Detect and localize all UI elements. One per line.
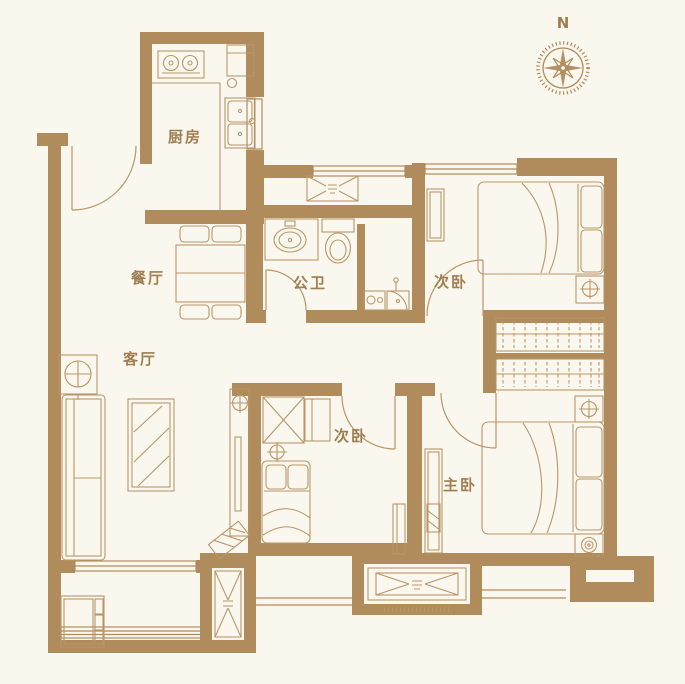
entry-inset — [364, 564, 470, 604]
wall-segment — [496, 353, 604, 359]
wall-segment — [422, 383, 435, 396]
wall-segment — [145, 210, 264, 224]
wall-segment — [248, 396, 261, 543]
wall-segment — [48, 560, 75, 573]
room-label-dining: 餐厅 — [131, 269, 165, 287]
wall-segment — [306, 310, 425, 323]
wall-segment — [246, 224, 263, 310]
corner-window-slot — [586, 570, 634, 582]
room-label-master: 主卧 — [443, 476, 477, 494]
room-label-bathroom: 公卫 — [293, 274, 327, 292]
wall-segment — [140, 32, 264, 44]
floorplan-page: 厨房 餐厅 公卫 次卧 客厅 次卧 主卧 N — [0, 0, 685, 684]
wall-segment — [140, 44, 152, 164]
room-label-bedroom-north: 次卧 — [434, 273, 468, 291]
wall-segment — [604, 158, 617, 560]
wall-segment — [263, 165, 313, 178]
compass-label: N — [557, 14, 570, 32]
wall-segment — [483, 310, 496, 393]
wall-segment — [37, 133, 68, 146]
wall-segment — [48, 146, 61, 653]
wall-segment — [246, 310, 266, 323]
wall-segment — [246, 44, 264, 97]
floorplan-svg: 厨房 餐厅 公卫 次卧 客厅 次卧 主卧 N — [0, 0, 685, 684]
wall-segment — [264, 205, 412, 218]
room-label-bedroom-center: 次卧 — [334, 427, 368, 445]
room-label-living: 客厅 — [122, 350, 157, 368]
wall-segment — [407, 396, 422, 553]
wall-segment — [483, 310, 604, 323]
wall-segment — [412, 163, 425, 313]
room-label-kitchen: 厨房 — [168, 128, 202, 146]
shaft-inset — [212, 568, 244, 640]
wall-segment — [517, 158, 604, 176]
